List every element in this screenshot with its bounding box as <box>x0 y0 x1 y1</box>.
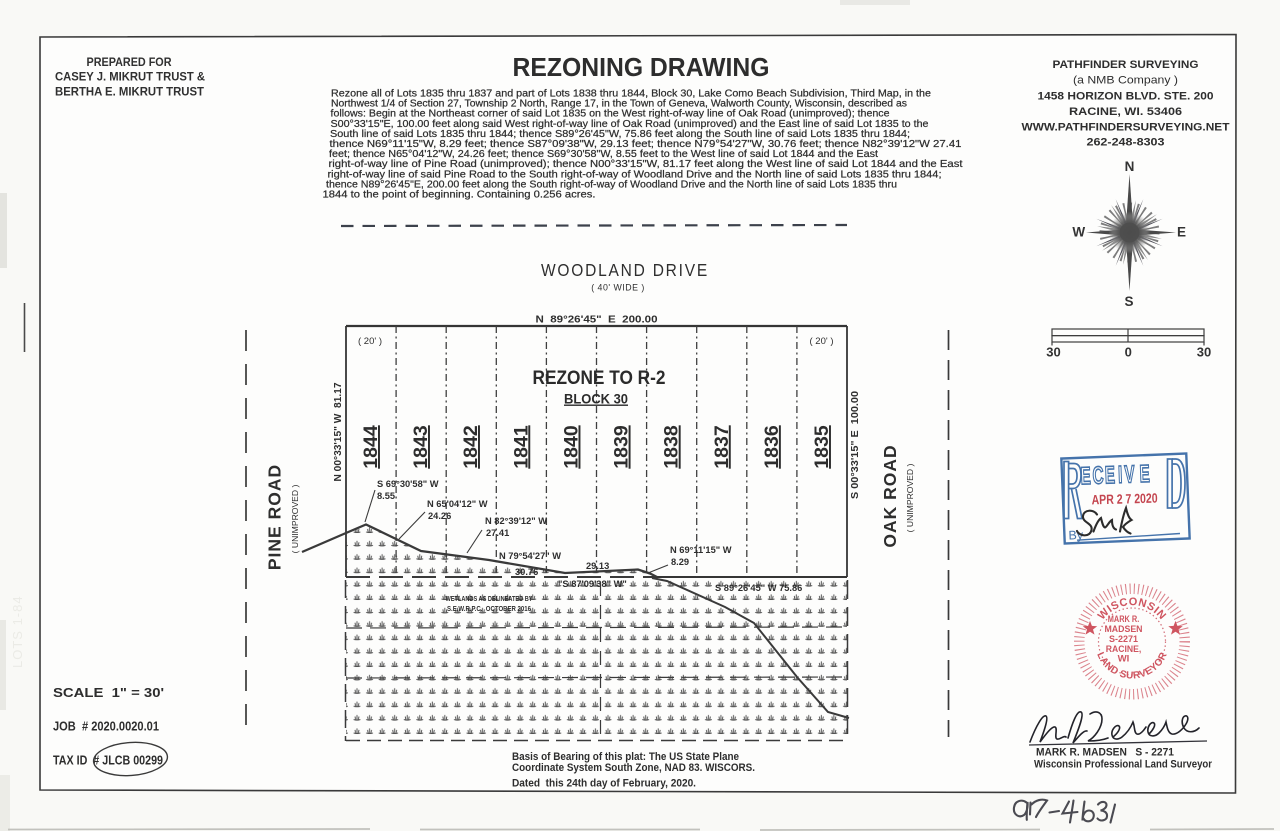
svg-text:JOB # 2020.0020.01: JOB # 2020.0020.01 <box>53 720 159 734</box>
svg-text:W: W <box>1072 225 1085 240</box>
svg-text:WWW.PATHFINDERSURVEYING.NET: WWW.PATHFINDERSURVEYING.NET <box>1022 122 1230 134</box>
svg-text:WOODLAND DRIVE: WOODLAND DRIVE <box>541 260 709 280</box>
svg-text:30: 30 <box>1046 345 1060 360</box>
svg-text:1838: 1838 <box>661 425 683 469</box>
svg-text:E: E <box>1177 225 1186 240</box>
svg-text:27.41: 27.41 <box>486 528 509 538</box>
svg-text:S 00°33'15" E 100.00: S 00°33'15" E 100.00 <box>850 390 861 499</box>
svg-text:1837: 1837 <box>711 425 733 468</box>
svg-text:SCALE 1" = 30': SCALE 1" = 30' <box>53 686 164 700</box>
svg-text:30.76: 30.76 <box>515 567 538 577</box>
svg-text:Coordinate System South Zone,: Coordinate System South Zone, NAD 83. WI… <box>512 762 755 774</box>
svg-text:N 69°11'15" W: N 69°11'15" W <box>670 545 732 555</box>
svg-text:N 79°54'27" W: N 79°54'27" W <box>499 551 561 561</box>
svg-text:CASEY J. MIKRUT TRUST &: CASEY J. MIKRUT TRUST & <box>55 70 205 84</box>
svg-text:PATHFINDER SURVEYING: PATHFINDER SURVEYING <box>1053 59 1199 71</box>
svg-text:1840: 1840 <box>561 425 583 469</box>
svg-text:1841: 1841 <box>510 425 532 469</box>
svg-text:1836: 1836 <box>761 425 783 469</box>
svg-text:( 20' ): ( 20' ) <box>810 336 834 347</box>
svg-text:( UNIMPROVED ): ( UNIMPROVED ) <box>290 484 300 553</box>
svg-text:E: E <box>1139 461 1150 488</box>
svg-text:N 65'04'12" W: N 65'04'12" W <box>427 499 488 509</box>
svg-text:1843: 1843 <box>410 425 432 469</box>
svg-text:0: 0 <box>1125 345 1132 360</box>
svg-text:8.29: 8.29 <box>671 557 689 567</box>
svg-text:1458 HORIZON BLVD. STE. 200: 1458 HORIZON BLVD. STE. 200 <box>1038 90 1214 102</box>
svg-text:PREPARED FOR: PREPARED FOR <box>87 55 172 69</box>
svg-text:1839: 1839 <box>611 425 633 469</box>
svg-text:E: E <box>1104 463 1115 490</box>
svg-text:REZONE TO R-2: REZONE TO R-2 <box>533 368 666 389</box>
svg-text:S 89°26'45" W 75.86: S 89°26'45" W 75.86 <box>715 583 802 593</box>
svg-text:Dated this 24th day of Februa: Dated this 24th day of February, 2020. <box>512 778 696 790</box>
svg-text:E: E <box>1080 463 1091 490</box>
svg-text:V: V <box>1124 462 1135 489</box>
svg-text:( 20' ): ( 20' ) <box>358 336 382 347</box>
svg-text:BERTHA E. MIKRUT TRUST: BERTHA E. MIKRUT TRUST <box>55 85 205 99</box>
svg-text:(a NMB Company ): (a NMB Company ) <box>1073 75 1178 87</box>
svg-text:Wisconsin Professional Land Su: Wisconsin Professional Land Surveyor <box>1034 759 1213 771</box>
svg-text:( 40' WIDE ): ( 40' WIDE ) <box>591 283 645 293</box>
svg-text:C: C <box>1092 463 1104 490</box>
svg-text:262-248-8303: 262-248-8303 <box>1087 136 1165 148</box>
svg-text:RACINE, WI. 53406: RACINE, WI. 53406 <box>1069 106 1182 118</box>
svg-text:1844 to the point of beginning: 1844 to the point of beginning. Containi… <box>323 190 596 201</box>
svg-text:N 82°39'12" W: N 82°39'12" W <box>485 516 547 526</box>
svg-text:N 00°33'15" W 81.17: N 00°33'15" W 81.17 <box>333 382 344 482</box>
svg-text:S.E.W.R.P.C. OCTOBER 2016: S.E.W.R.P.C. OCTOBER 2016 <box>447 604 531 613</box>
svg-text:BLOCK 30: BLOCK 30 <box>564 391 628 407</box>
svg-text:8.55: 8.55 <box>377 491 395 501</box>
svg-text:1835: 1835 <box>811 425 833 469</box>
svg-text:( UNIMPROVED ): ( UNIMPROVED ) <box>905 463 915 532</box>
svg-text:WI: WI <box>1118 654 1130 665</box>
svg-text:N: N <box>1125 159 1135 174</box>
svg-text:OAK ROAD: OAK ROAD <box>880 444 900 547</box>
svg-text:S: S <box>1124 294 1133 309</box>
svg-text:N 89°26'45" E 200.00: N 89°26'45" E 200.00 <box>536 314 658 326</box>
svg-text:WETLANDS AS DELINEATED BY: WETLANDS AS DELINEATED BY <box>446 594 533 603</box>
svg-text:1842: 1842 <box>460 425 482 469</box>
svg-text:S 69°30'58" W: S 69°30'58" W <box>377 479 439 489</box>
svg-text:TAX ID # JLCB 00299: TAX ID # JLCB 00299 <box>53 754 163 768</box>
svg-text:APR 2 7 2020: APR 2 7 2020 <box>1091 491 1157 508</box>
svg-text:LOTS 1-84: LOTS 1-84 <box>10 595 25 668</box>
svg-text:24.26: 24.26 <box>428 511 451 521</box>
svg-text:PINE ROAD: PINE ROAD <box>265 464 285 570</box>
svg-text:MARK R. MADSEN S - 2271: MARK R. MADSEN S - 2271 <box>1036 747 1174 759</box>
svg-text:REZONING DRAWING: REZONING DRAWING <box>513 54 770 82</box>
svg-text:1844: 1844 <box>360 425 382 469</box>
svg-text:"S 87'09'38" W": "S 87'09'38" W" <box>558 579 627 589</box>
svg-text:29.13: 29.13 <box>586 561 609 571</box>
svg-text:30: 30 <box>1197 345 1211 360</box>
